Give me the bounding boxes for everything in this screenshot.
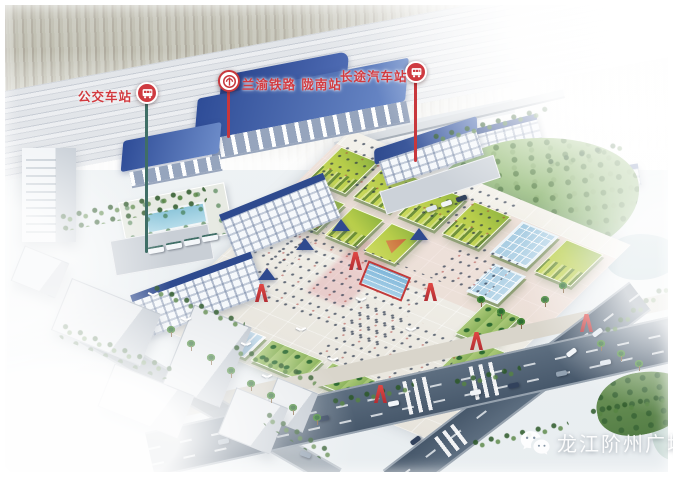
- coach-station-label: 长途汽车站: [340, 66, 408, 85]
- palm-tree: [496, 308, 506, 316]
- bird: [241, 341, 251, 346]
- pavilion-roof: [332, 219, 350, 231]
- palm-tree: [246, 380, 256, 388]
- wechat-icon: [520, 430, 550, 456]
- coach-station-pin-stem: [414, 82, 417, 162]
- bus-station-pin-stem: [145, 103, 148, 253]
- palm-tree: [540, 296, 550, 304]
- pavilion-roof: [296, 238, 314, 250]
- railway-station-label: 兰渝铁路 陇南站: [242, 74, 342, 93]
- palm-tree: [516, 318, 526, 326]
- bird: [181, 316, 191, 321]
- palm-tree: [476, 296, 486, 304]
- aerial-masterplan-rendering: 公交车站 兰渝铁路 陇南站 长途汽车站 龙江阶州广场: [0, 0, 673, 477]
- palm-tree: [634, 360, 644, 368]
- pavilion-roof: [258, 268, 276, 280]
- bus-icon: [410, 66, 423, 79]
- palm-tree: [288, 404, 298, 412]
- bird: [296, 326, 306, 331]
- massing-building: [11, 245, 70, 298]
- palm-tree: [226, 367, 236, 375]
- palm-tree: [312, 414, 322, 422]
- terrace-sculpture: [378, 233, 406, 253]
- bus-icon: [141, 87, 154, 100]
- bird: [148, 291, 158, 296]
- bird: [328, 356, 338, 361]
- bird: [262, 373, 272, 378]
- palm-tree: [596, 340, 606, 348]
- bird: [356, 296, 366, 301]
- bus-station-label: 公交车站: [78, 86, 132, 105]
- coach-station-pin: [405, 61, 427, 83]
- bus-station-pin: [136, 82, 158, 104]
- palm-tree: [266, 392, 276, 400]
- palm-tree: [186, 340, 196, 348]
- palm-tree: [558, 282, 568, 290]
- parked-bus: [202, 233, 219, 243]
- palm-tree: [616, 350, 626, 358]
- railway-station-pin: [218, 70, 240, 92]
- bird: [406, 326, 416, 331]
- china-railway-icon: [222, 74, 237, 89]
- palm-tree: [206, 354, 216, 362]
- railway-station-pin-stem: [227, 90, 230, 138]
- pavilion-roof: [410, 228, 428, 240]
- wechat-watermark: 龙江阶州广场: [520, 428, 673, 457]
- watermark-text: 龙江阶州广场: [557, 428, 673, 457]
- palm-tree: [166, 326, 176, 334]
